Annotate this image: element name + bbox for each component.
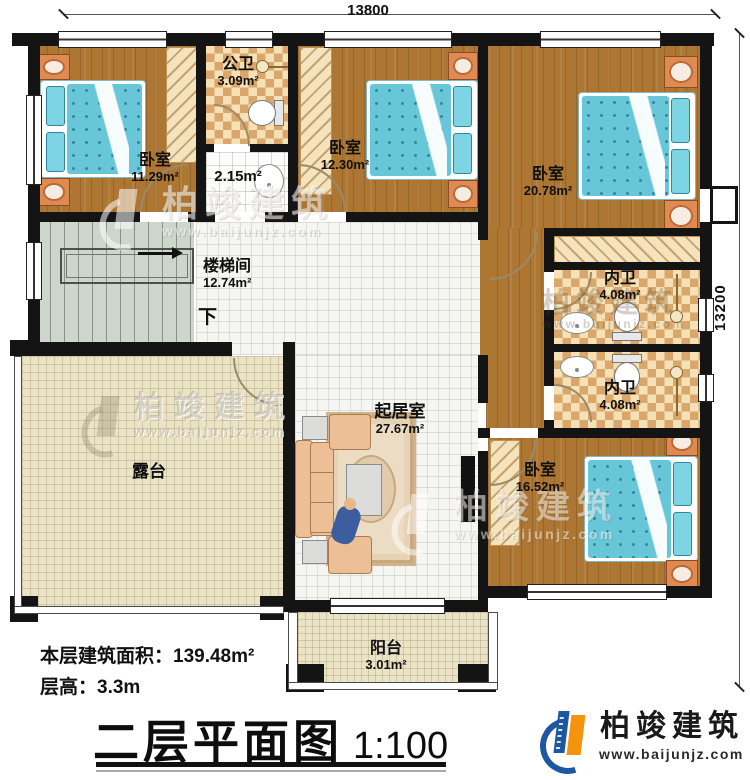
room-name: 卧室 — [112, 152, 198, 170]
room-name: 内卫 — [586, 380, 654, 398]
room-label-stair-hall: 楼梯间 12.74m² — [203, 258, 299, 291]
room-area: 3.09m² — [204, 74, 272, 89]
wall — [250, 144, 290, 152]
nightstand — [38, 54, 70, 80]
shower-arm — [676, 274, 678, 312]
room-label-bedroom1: 卧室 11.29m² — [112, 152, 198, 185]
dimension-label-top: 13800 — [328, 2, 408, 19]
bed-bedroom3 — [578, 92, 696, 200]
pillow — [673, 462, 692, 506]
company-website: www.baijunjz.com — [599, 746, 744, 762]
room-area: 2.15m² — [204, 168, 272, 185]
company-logo-icon — [540, 706, 596, 768]
window — [58, 31, 167, 48]
side-table — [302, 416, 328, 440]
room-label-balcony: 阳台 3.01m² — [346, 640, 426, 673]
room-label-bedroom4: 卧室 16.52m² — [498, 462, 582, 495]
nightstand — [664, 56, 698, 88]
wall — [452, 33, 540, 46]
room-name: 楼梯间 — [203, 258, 299, 276]
wall — [544, 228, 712, 236]
pillow — [671, 149, 690, 194]
room-label-bedroom2: 卧室 12.30m² — [302, 140, 388, 173]
pillow — [453, 86, 472, 127]
wall — [478, 45, 488, 240]
room-label-inner-bath2: 内卫 4.08m² — [586, 380, 654, 413]
window — [330, 598, 445, 614]
person-head — [344, 498, 356, 510]
wall — [346, 212, 488, 222]
bed-bedroom4 — [584, 456, 698, 562]
nightstand — [448, 52, 478, 80]
wall — [478, 451, 488, 600]
title-underline — [96, 762, 446, 767]
company-name: 柏竣建筑 — [600, 712, 744, 742]
wall — [206, 144, 214, 152]
wall — [700, 33, 712, 189]
wall — [478, 586, 527, 598]
balcony-railing — [288, 612, 298, 686]
drawing-scale: 1:100 — [353, 725, 448, 767]
nightstand — [666, 560, 698, 588]
column — [10, 340, 36, 356]
room-area: 12.30m² — [302, 158, 388, 173]
wall — [288, 45, 298, 212]
side-table — [302, 540, 328, 564]
wall — [445, 600, 488, 612]
room-area: 12.74m² — [203, 276, 299, 291]
dimension-label-right: 13200 — [712, 258, 729, 358]
room-label-inner-bath1: 内卫 4.08m² — [586, 270, 654, 303]
window — [324, 31, 452, 48]
window — [26, 95, 42, 185]
window — [225, 31, 273, 48]
room-name: 露台 — [118, 462, 180, 482]
wall — [478, 428, 490, 438]
pillow — [671, 98, 690, 143]
walkin-closet-bedroom3 — [554, 236, 702, 264]
toilet-tank — [612, 332, 642, 341]
blanket-fold — [621, 95, 665, 197]
wall — [700, 332, 712, 374]
sofa-seats — [310, 442, 334, 536]
shower-arm — [676, 378, 678, 416]
wall — [273, 33, 324, 46]
stair-rail-inner — [66, 254, 188, 278]
room-area: 4.08m² — [586, 398, 654, 413]
terrace-railing — [14, 606, 284, 614]
wall — [283, 600, 330, 612]
shower-head-icon — [670, 366, 683, 379]
wall — [544, 262, 712, 270]
toilet-icon — [614, 302, 640, 332]
nightstand — [38, 178, 70, 206]
room-label-living: 起居室 27.67m² — [352, 402, 448, 436]
stair-arrow-icon — [172, 247, 183, 259]
balcony-railing — [288, 682, 498, 690]
room-area: 3.01m² — [346, 658, 426, 673]
title-underline-thin — [96, 770, 446, 772]
room-label-vestibule: 2.15m² — [204, 168, 272, 185]
terrace-railing — [14, 356, 22, 608]
room-name: 卧室 — [502, 166, 594, 184]
wall — [265, 212, 298, 222]
stair-arrow-shaft — [138, 252, 174, 255]
window — [527, 584, 667, 600]
floor-height-note: 层高：3.3m — [40, 672, 140, 699]
room-label-public-bath: 公卫 3.09m² — [204, 56, 272, 89]
room-label-terrace: 露台 — [118, 462, 180, 482]
room-name: 公卫 — [204, 56, 272, 74]
shower-head-icon — [670, 310, 683, 323]
sink-icon — [560, 312, 594, 334]
floor-plan-canvas: 柏竣建筑 www.baijunjz.com 柏竣建筑 www.baijunjz.… — [0, 0, 750, 780]
toilet-icon — [248, 100, 276, 126]
wall — [544, 420, 554, 428]
sink-icon — [560, 356, 594, 378]
room-name: 卧室 — [498, 462, 582, 480]
room-area: 11.29m² — [112, 170, 198, 185]
window — [540, 31, 661, 48]
pillow — [673, 512, 692, 556]
wardrobe-bedroom1 — [166, 47, 198, 163]
room-name: 内卫 — [586, 270, 654, 288]
wall — [28, 212, 140, 222]
room-area: 4.08m² — [586, 288, 654, 303]
room-area: 20.78m² — [502, 184, 594, 199]
terrace-floor — [22, 356, 283, 608]
wall — [544, 344, 712, 352]
nightstand — [448, 180, 478, 208]
blanket-fold — [403, 83, 447, 177]
dimension-line-right — [739, 33, 740, 688]
room-label-bedroom3: 卧室 20.78m² — [502, 166, 594, 199]
balcony-railing — [488, 612, 498, 686]
window — [26, 242, 42, 300]
pillow — [46, 132, 65, 172]
wall — [28, 33, 40, 95]
floor-area-note: 本层建筑面积：139.48m² — [40, 641, 254, 668]
pillow — [46, 86, 65, 126]
blanket-fold — [623, 459, 667, 559]
drawing-title-text: 二层平面图 — [93, 716, 343, 768]
wall — [478, 355, 488, 403]
wall — [188, 212, 215, 222]
room-area: 16.52m² — [498, 480, 582, 495]
pillow — [453, 133, 472, 174]
wall — [283, 342, 295, 612]
wall — [538, 428, 712, 438]
room-name: 阳台 — [346, 640, 426, 658]
flue-niche — [710, 186, 738, 224]
room-name: 卧室 — [302, 140, 388, 158]
wall — [28, 342, 232, 356]
window — [698, 374, 714, 402]
room-area: 27.67m² — [352, 422, 448, 437]
wall — [667, 586, 712, 598]
room-name: 起居室 — [352, 402, 448, 422]
tv — [461, 456, 475, 522]
stairs-direction-label: 下 — [198, 302, 217, 329]
